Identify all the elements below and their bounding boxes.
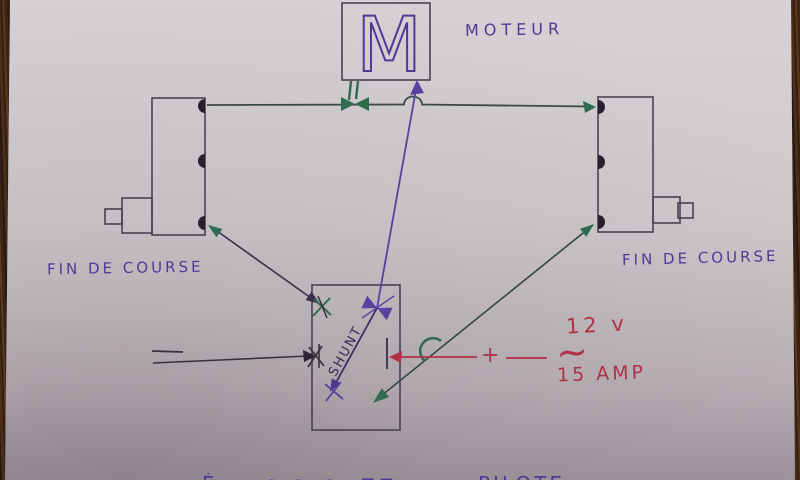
cutoff-caption: É ∩ ∩ ∩ ⊓⊓ PILOTE (0, 473, 800, 480)
caption-fragment: ∩ (322, 473, 340, 480)
caption-fragment: ∩ ∩ (264, 473, 309, 480)
photo-of-hand-drawn-schematic: M (0, 0, 800, 480)
supply-plus-sign: + (481, 343, 499, 368)
limit-switch-left-label: FIN DE COURSE (47, 258, 204, 279)
caption-fragment: ⊓⊓ (360, 473, 397, 480)
caption-fragment: PILOTE (478, 473, 565, 480)
motor-symbol: M (356, 0, 422, 89)
motor-label: MOTEUR (465, 19, 564, 40)
schematic-drawing: M (0, 0, 800, 480)
caption-fragment: É (202, 473, 218, 480)
supply-current-label: 15 AMP (557, 361, 647, 386)
